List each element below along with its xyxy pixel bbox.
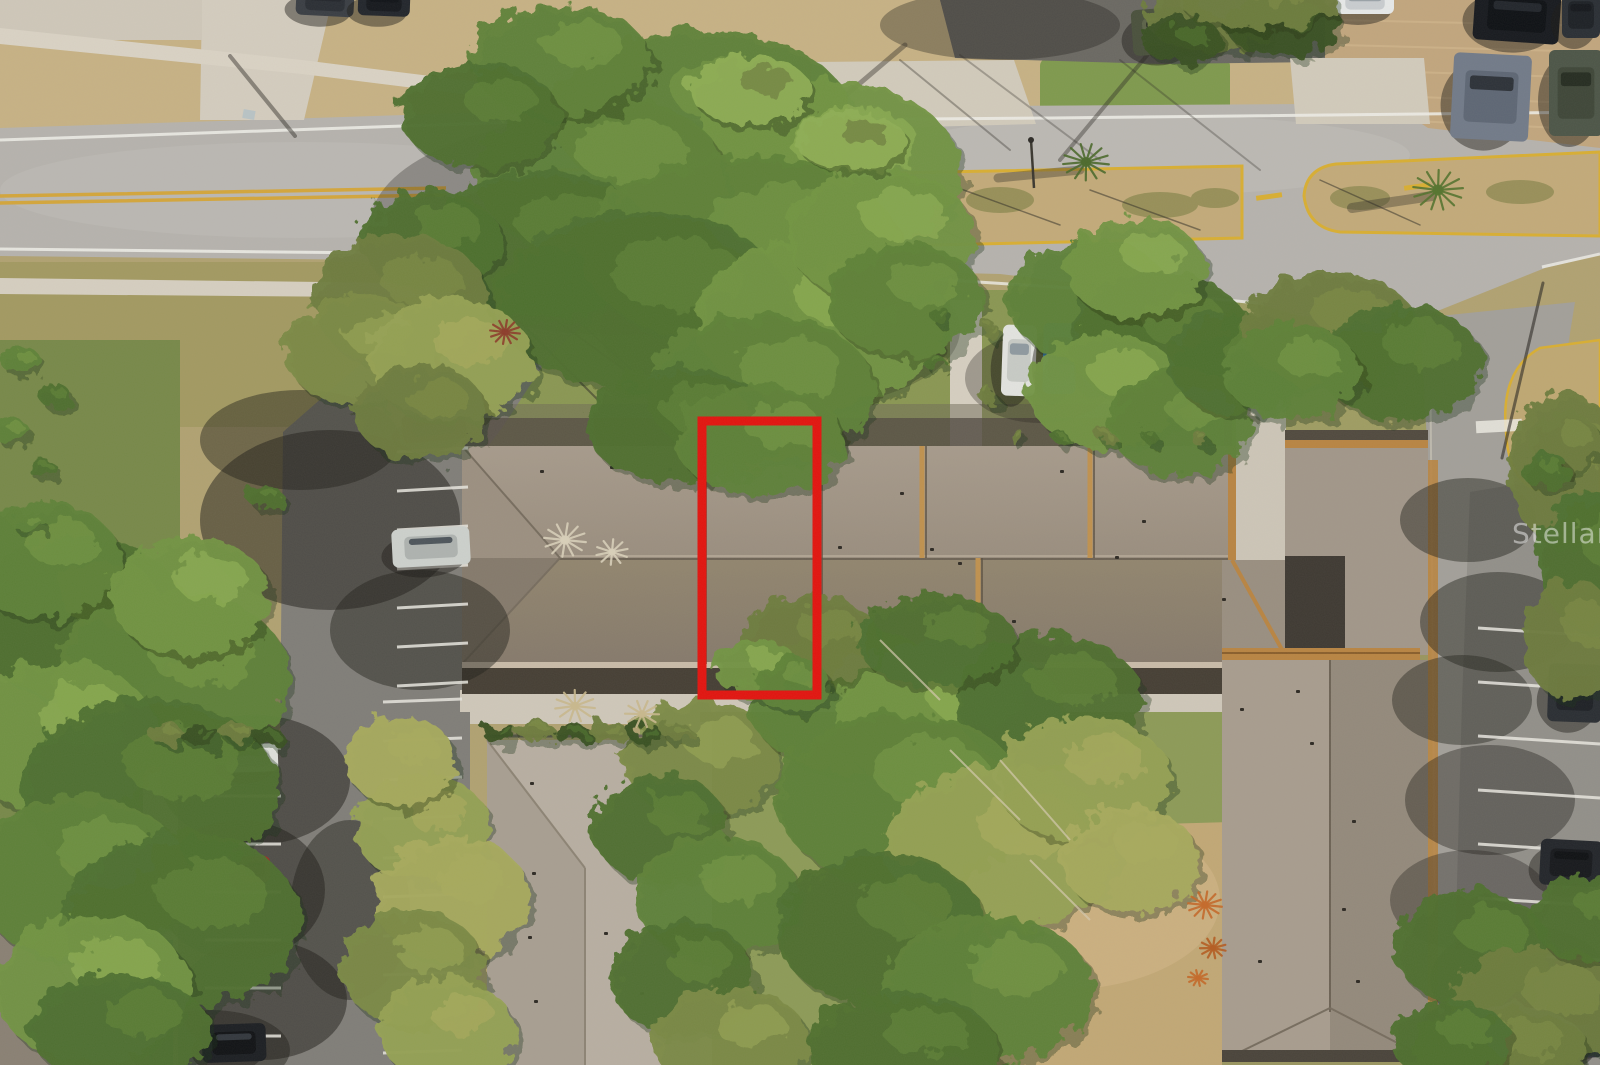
photo-grain-overlay (0, 0, 1600, 1065)
aerial-photo-stage: StellarMLS (0, 0, 1600, 1065)
aerial-photo-scene: StellarMLS (0, 0, 1600, 1065)
